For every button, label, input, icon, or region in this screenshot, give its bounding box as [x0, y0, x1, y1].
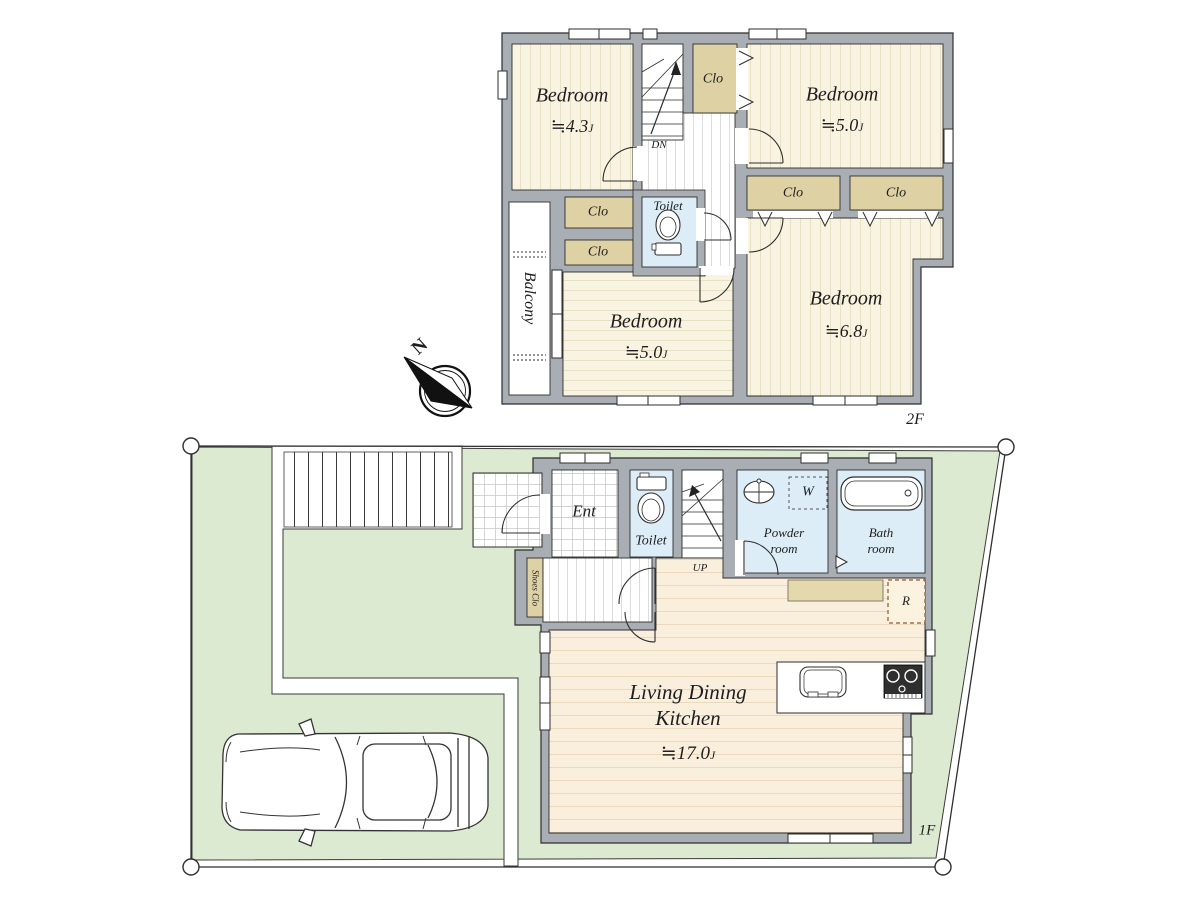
room-bedroom-sw	[563, 272, 733, 396]
kitchen-back-counter	[788, 580, 883, 601]
room-bedroom-ne	[747, 44, 943, 168]
kitchen-sink-icon	[800, 667, 846, 697]
floor-plan-page: Bedroom ≒4.3J Bedroom ≒5.0J Bedroom ≒5.0…	[0, 0, 1200, 900]
balcony	[509, 202, 550, 395]
bathtub-icon	[841, 477, 922, 510]
closet-2f-top	[693, 44, 737, 113]
north-needle-dark	[404, 357, 472, 408]
refrigerator-box	[888, 580, 925, 623]
closet-2f-r2	[850, 176, 943, 210]
room-bedroom-nw	[512, 44, 633, 190]
room-entrance	[552, 470, 618, 557]
shoes-closet	[527, 558, 543, 617]
entry-porch	[473, 473, 542, 547]
closet-2f-l1	[565, 197, 633, 228]
floor-1f	[473, 453, 935, 843]
stairs-2f	[642, 44, 683, 140]
compass-icon	[404, 357, 472, 416]
floor-plan-graphic	[0, 0, 1200, 900]
walkway-steps	[284, 452, 452, 527]
floor-2f	[498, 29, 953, 405]
closet-2f-r1	[747, 176, 840, 210]
stove-icon	[884, 665, 922, 698]
car-icon	[222, 719, 488, 846]
stairs-1f	[682, 470, 723, 558]
closet-2f-l2	[565, 240, 633, 265]
hall-1f	[543, 558, 652, 622]
